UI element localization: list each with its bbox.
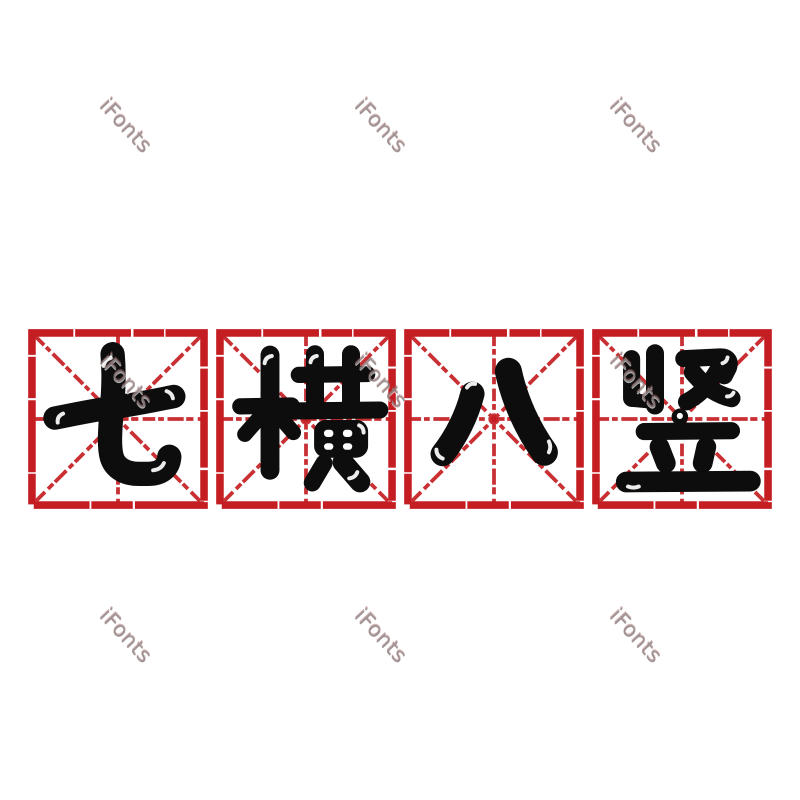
mi-grid-cell-2: 横 xyxy=(216,329,396,509)
ifonts-watermark: iFonts xyxy=(95,604,157,668)
glyph-label: 竖 xyxy=(592,509,593,510)
mi-zi-ge-grid xyxy=(592,329,772,509)
mi-zi-ge-grid xyxy=(404,329,584,509)
mi-grid-cell-4: 竖 xyxy=(592,329,772,509)
mi-grid-cell-3: 八 xyxy=(404,329,584,509)
ifonts-watermark: iFonts xyxy=(350,604,412,668)
glyph-heng xyxy=(240,354,379,483)
mi-grid-cell-1: 七 xyxy=(28,329,208,509)
font-preview-canvas: 七 xyxy=(0,0,800,800)
ifonts-watermark: iFonts xyxy=(95,94,157,158)
ifonts-watermark: iFonts xyxy=(605,604,667,668)
mi-zi-ge-grid xyxy=(28,329,208,509)
glyph-label: 横 xyxy=(216,509,217,510)
ifonts-watermark: iFonts xyxy=(350,94,412,158)
ifonts-watermark: iFonts xyxy=(605,94,667,158)
glyph-label: 八 xyxy=(404,509,405,510)
mi-zi-ge-grid xyxy=(216,329,396,509)
grid-lines xyxy=(408,333,580,505)
glyph-label: 七 xyxy=(28,509,29,510)
